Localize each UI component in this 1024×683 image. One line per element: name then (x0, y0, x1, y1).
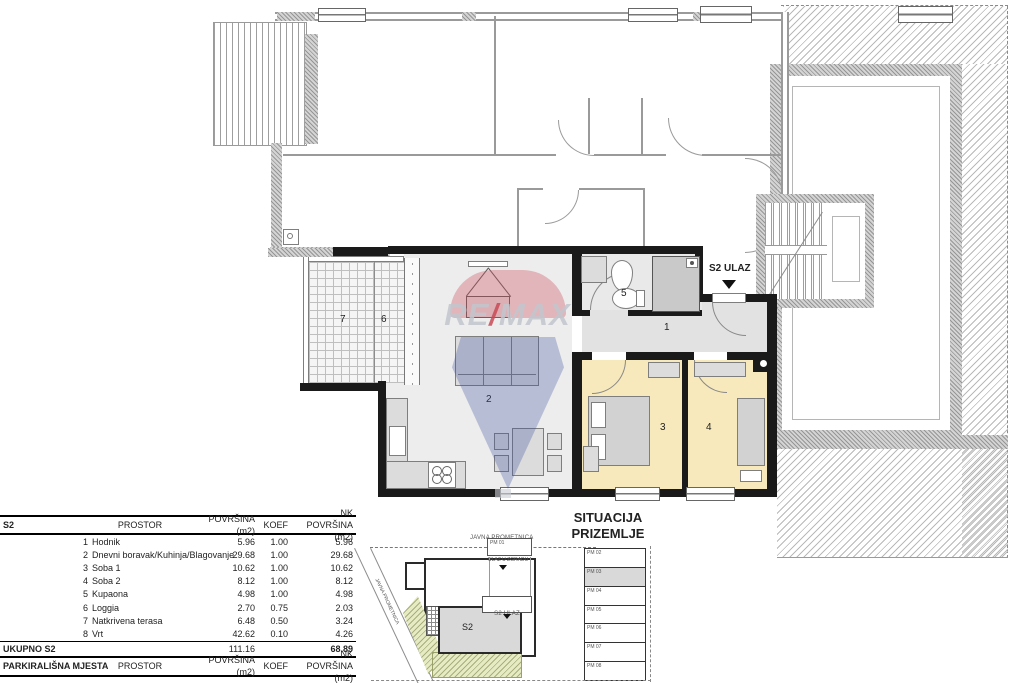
row-area: 2.70 (198, 602, 255, 614)
parking-stall: PM 05 (585, 606, 645, 625)
row-nk: 4.98 (293, 588, 353, 600)
parking-stall-label: PM 08 (587, 664, 601, 669)
row-koef: 1.00 (258, 588, 288, 600)
wall-segment (333, 247, 388, 256)
closet-bedroom1 (648, 362, 680, 378)
table-row: 1 Hodnik 5.96 1.00 5.96 (0, 535, 356, 548)
kitchen-stove (428, 462, 456, 488)
parking-stall-label: PM 07 (587, 645, 601, 650)
neighbor-door-arc (558, 120, 594, 156)
wall-bedrooms-top (582, 352, 592, 360)
row-name: Hodnik (92, 536, 120, 548)
parking-stall: PM 02 (585, 549, 645, 568)
row-name: Loggia (92, 602, 119, 614)
site-pm01-box: PM 01 (487, 538, 532, 556)
site-boundary-right (650, 546, 651, 682)
sofa (455, 336, 539, 386)
garden-hatch (777, 449, 1008, 558)
wall-bath-bottom (582, 310, 590, 316)
row-num: 8 (0, 628, 88, 640)
parking-header-area: POVRŠINA (m2) (198, 654, 255, 678)
room-label-hall: 1 (664, 322, 670, 333)
neighbor-door-arc (668, 118, 706, 156)
site-garden-bottom (432, 652, 522, 678)
dining-chair (547, 433, 562, 450)
row-koef: 1.00 (258, 575, 288, 587)
site-boundary-bottom (371, 680, 651, 681)
row-nk: 2.03 (293, 602, 353, 614)
wall-loggia-bottom (300, 383, 386, 391)
loggia-sliding-door (404, 258, 420, 385)
neighbor-window (700, 6, 752, 23)
entrance-arrow-icon (722, 280, 736, 289)
room-label-living: 2 (486, 394, 492, 405)
pergola (213, 22, 307, 146)
row-name: Soba 1 (92, 562, 121, 574)
neighbor-wall (283, 154, 783, 156)
table-row: 3 Soba 1 10.62 1.00 10.62 (0, 561, 356, 574)
row-nk: 29.68 (293, 549, 353, 561)
row-name: Soba 2 (92, 575, 121, 587)
row-num: 4 (0, 575, 88, 587)
wall-bedroom-divider (682, 360, 688, 489)
parking-stall-label: PM 06 (587, 626, 601, 631)
window-bedroom1 (615, 487, 660, 501)
bench-bedroom1 (583, 446, 599, 472)
row-nk: 3.24 (293, 615, 353, 627)
wall-bottom4 (733, 489, 777, 497)
row-num: 5 (0, 588, 88, 600)
window-living (500, 487, 549, 501)
dining-chair (494, 455, 509, 472)
row-area: 6.48 (198, 615, 255, 627)
bed-bedroom2 (737, 398, 765, 466)
table-row: 2 Dnevni boravak/Kuhinja/Blagovanje 29.6… (0, 548, 356, 561)
neighbor-left-wall (271, 143, 282, 257)
closet-bedroom2 (694, 362, 746, 377)
neighbor-window (318, 8, 366, 22)
wall-bottom3 (658, 489, 688, 497)
header-room: PROSTOR (92, 519, 188, 531)
neighbor-wall (494, 16, 496, 156)
room-label-bedroom1: 3 (660, 422, 666, 433)
entrance-label: S2 ULAZ (709, 263, 751, 274)
parking-header-nk: NK POVRŠINA (m2) (293, 648, 353, 683)
row-nk: 5.96 (293, 536, 353, 548)
terrace-loggia-tiles (309, 262, 404, 383)
row-koef: 0.10 (258, 628, 288, 640)
row-area: 42.62 (198, 628, 255, 640)
wall-right (767, 297, 777, 493)
row-name: Natkrivena terasa (92, 615, 163, 627)
total-area: 111.16 (198, 643, 255, 655)
room-label-loggia: 6 (381, 314, 387, 325)
site-title-line2: PRIZEMLJE (543, 526, 673, 542)
stair-landing (832, 216, 860, 282)
dining-table (512, 428, 544, 476)
pendant-panel (466, 296, 510, 318)
road-top-line (370, 547, 596, 548)
table-row: 5 Kupaona 4.98 1.00 4.98 (0, 588, 356, 601)
header-koef: KOEF (258, 519, 288, 531)
toilet-tank (636, 290, 645, 307)
wall-top (388, 246, 703, 254)
neighbor-top-pier (277, 12, 315, 21)
kitchen-sink (389, 426, 406, 456)
rug-bedroom2 (740, 470, 762, 482)
header-area: POVRŠINA (m2) (198, 513, 255, 537)
lot-boundary-dashed-top (781, 5, 1008, 6)
row-koef: 1.00 (258, 549, 288, 561)
wall-segment (268, 248, 333, 257)
site-building-entrance-label: ULAZ U ZGRADU (488, 558, 528, 563)
row-name: Vrt (92, 628, 103, 640)
table-row: 8 Vrt 42.62 0.10 4.26 (0, 627, 356, 640)
row-area: 8.12 (198, 575, 255, 587)
table-row: 7 Natkrivena terasa 6.48 0.50 3.24 (0, 614, 356, 627)
site-pm01-label: PM 01 (490, 541, 504, 546)
table-row: 6 Loggia 2.70 0.75 2.03 (0, 601, 356, 614)
neighbor-room (517, 188, 645, 248)
neighbor-right-wall (781, 12, 789, 194)
hatch-area-top (783, 6, 1008, 64)
site-building-entrance-arrow-icon (499, 565, 507, 570)
wall-living-right-lower (572, 352, 582, 489)
site-corridor-line1 (489, 557, 490, 598)
parking-stall-label: PM 05 (587, 608, 601, 613)
parking-stall-label: PM 04 (587, 589, 601, 594)
room-label-bathroom: 5 (621, 288, 627, 299)
pendant-bar (468, 261, 508, 267)
parking-header-koef: KOEF (258, 660, 288, 672)
total-label: UKUPNO S2 (3, 643, 56, 655)
washing-machine (581, 256, 607, 283)
terrace-loggia-divider (374, 262, 375, 383)
wall-bedrooms-top2 (626, 352, 694, 360)
header-unit: S2 (3, 519, 14, 531)
row-num: 6 (0, 602, 88, 614)
row-koef: 1.00 (258, 536, 288, 548)
parking-stall-label: PM 02 (587, 551, 601, 556)
row-koef: 1.00 (258, 562, 288, 574)
room-label-bedroom2: 4 (706, 422, 712, 433)
row-area: 4.98 (198, 588, 255, 600)
pergola-edge (305, 34, 318, 144)
row-num: 2 (0, 549, 88, 561)
table-header-row: S2 PROSTOR POVRŠINA (m2) KOEF NK POVRŠIN… (0, 515, 356, 535)
wall-bottom (378, 489, 502, 497)
column-marker-dot (287, 233, 293, 239)
row-nk: 4.26 (293, 628, 353, 640)
parking-stall: PM 07 (585, 643, 645, 662)
neighbor-window (628, 8, 678, 22)
neighbor-top-pier2 (462, 12, 476, 21)
parking-header-row: PARKIRALIŠNA MJESTA PROSTOR POVRŠINA (m2… (0, 658, 356, 677)
wall-bottom2 (547, 489, 617, 497)
row-area: 29.68 (198, 549, 255, 561)
dining-chair (547, 455, 562, 472)
dining-chair (494, 433, 509, 450)
parking-stall-label: PM 03 (587, 570, 601, 575)
row-name: Kupaona (92, 588, 128, 600)
parking-stall: PM 08 (585, 662, 645, 680)
site-title: SITUACIJA PRIZEMLJE (543, 510, 673, 542)
site-s2-ulaz-box: S2 ULAZ (482, 596, 532, 613)
row-area: 10.62 (198, 562, 255, 574)
floorplan-sheet: 1 2 3 4 5 6 7 S2 ULAZ RE/MAX S2 PROSTOR … (0, 0, 1024, 683)
column-black-dot (760, 360, 767, 367)
row-num: 7 (0, 615, 88, 627)
row-koef: 0.75 (258, 602, 288, 614)
shower-drain (686, 258, 698, 268)
site-s2-ulaz-arrow-icon (503, 614, 511, 619)
area-table: S2 PROSTOR POVRŠINA (m2) KOEF NK POVRŠIN… (0, 515, 356, 677)
row-koef: 0.50 (258, 615, 288, 627)
parking-header-room: PROSTOR (92, 660, 188, 672)
room-label-terrace: 7 (340, 314, 346, 325)
window-bedroom2 (686, 487, 735, 501)
row-nk: 8.12 (293, 575, 353, 587)
wall-kitchen-left (378, 381, 386, 497)
row-nk: 10.62 (293, 562, 353, 574)
parking-stall: PM 04 (585, 587, 645, 606)
garden-edge-band (777, 435, 1008, 449)
parking-stall: PM 03 (585, 568, 645, 587)
table-row: 4 Soba 2 8.12 1.00 8.12 (0, 575, 356, 588)
site-title-line1: SITUACIJA (543, 510, 673, 526)
site-parking-column: PM 02 PM 03 PM 04 PM 05 PM 06 PM 07 PM 0… (584, 548, 646, 681)
pillow (591, 402, 606, 428)
site-unit-s2-label: S2 (462, 622, 473, 632)
parking-stall: PM 06 (585, 624, 645, 643)
row-num: 1 (0, 536, 88, 548)
neighbor-wall (641, 98, 643, 156)
row-area: 5.96 (198, 536, 255, 548)
wall-entry-left (702, 294, 712, 302)
row-num: 3 (0, 562, 88, 574)
neighbor-skylight (898, 6, 953, 23)
